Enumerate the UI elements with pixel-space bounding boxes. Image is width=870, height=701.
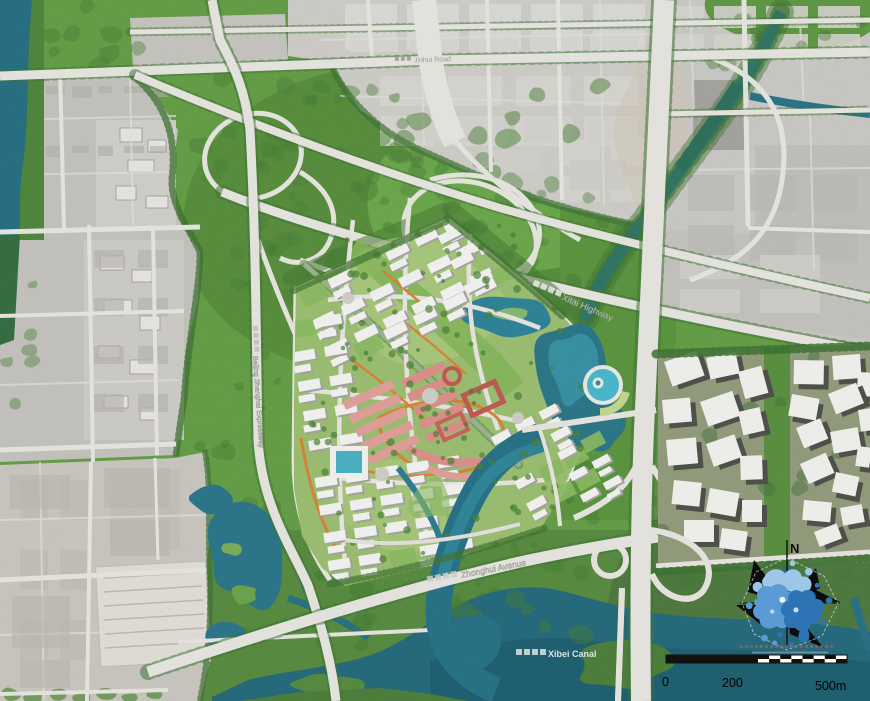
svg-text:200: 200	[722, 676, 743, 690]
svg-text:N: N	[790, 541, 799, 556]
svg-text:500m: 500m	[815, 679, 846, 693]
svg-text:0: 0	[662, 675, 669, 689]
